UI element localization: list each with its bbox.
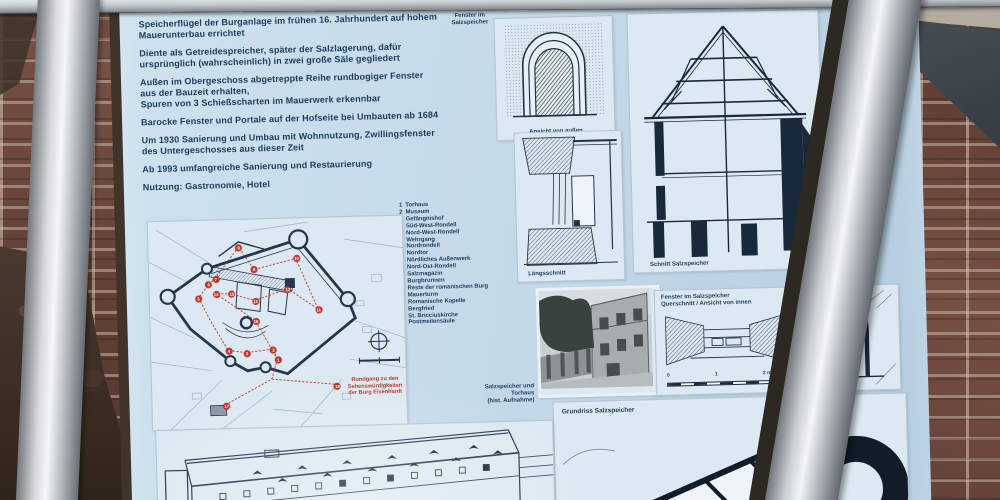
map-marker-3: 3 [243,351,250,358]
intro-paragraph: Nutzung: Gastronomie, Hotel [143,174,483,194]
floor-plan-drawing [554,426,909,500]
scale-bar: 0 1 2 m [667,376,775,389]
map-marker-18: 18 [334,382,341,389]
map-marker-7: 7 [212,276,219,283]
caption-laengsschnitt: Längsschnitt [528,270,565,277]
building-elevation-drawing [156,421,554,500]
intro-paragraph: Außen im Obergeschoss abgetreppte Reihe … [140,69,481,111]
caption-schnitt-salzspeicher: Schnitt Salzspeicher [650,261,709,269]
castle-map-markers: 123456789101112131415161718 [148,216,407,431]
map-marker-14: 14 [213,291,220,298]
scale-label-1: 1 [715,371,718,377]
intro-paragraph: Um 1930 Sanierung und Umbau mit Wohnnutz… [141,127,481,158]
laengsschnitt-drawing [515,131,624,268]
hist-photo-caption: Salzspeicher und Torhaus (hist. Aufnahme… [434,383,535,407]
caption-grundriss: Grundriss Salzspeicher [562,407,635,416]
panel-laengsschnitt: Längsschnitt [514,130,626,283]
map-marker-16: 16 [252,318,259,325]
intro-text-block: Speicherflügel der Burganlage im frühen … [138,11,483,201]
historical-photo-image [539,288,654,389]
photo-of-information-sign: Speicherflügel der Burganlage im frühen … [0,0,1000,500]
scale-bar-line [667,380,777,387]
panel-elevation [155,420,556,500]
map-marker-1: 1 [275,356,282,363]
map-marker-15: 15 [228,291,235,298]
legend-item-label: Postmeilensäule [408,319,455,327]
map-marker-13: 13 [252,298,259,305]
caption-querschnitt: Fenster im Salzspeicher Querschnitt / An… [661,293,752,309]
map-marker-17: 17 [223,402,230,409]
tour-note-label: Rundgang zu den Sehenswürdigkeiten der B… [346,376,404,397]
arch-window-outside-drawing [495,16,615,125]
historical-photo [536,285,663,398]
map-marker-8: 8 [251,266,258,273]
map-marker-12: 12 [284,286,291,293]
intro-paragraph: Ab 1993 umfangreiche Sanierung und Resta… [142,156,482,176]
panel-window-outside: Ansicht von außen [493,15,615,141]
map-marker-2: 2 [270,346,277,353]
map-marker-4: 4 [225,348,232,355]
intro-paragraph: Barocke Fenster und Portale auf der Hofs… [141,109,481,129]
map-marker-11: 11 [315,306,322,313]
map-marker-9: 9 [235,244,242,251]
roof-truss-section-drawing [627,10,823,259]
map-marker-10: 10 [293,255,300,262]
intro-paragraph: Diente als Getreidespreicher, später der… [139,40,479,71]
map-legend-list: 1Torhaus2Museum3Gefängnishof4Süd-West-Ro… [393,200,516,327]
panel-grundriss: Grundriss Salzspeicher [553,392,910,500]
map-marker-5: 5 [195,295,202,302]
intro-paragraph: Speicherflügel der Burganlage im frühen … [138,11,478,42]
window-note-label: Fenster im Salzspeicher [451,12,488,27]
castle-map-panel: 123456789101112131415161718 Rundgang zu … [147,215,408,432]
map-marker-6: 6 [205,281,212,288]
scale-label-0: 0 [667,373,670,379]
